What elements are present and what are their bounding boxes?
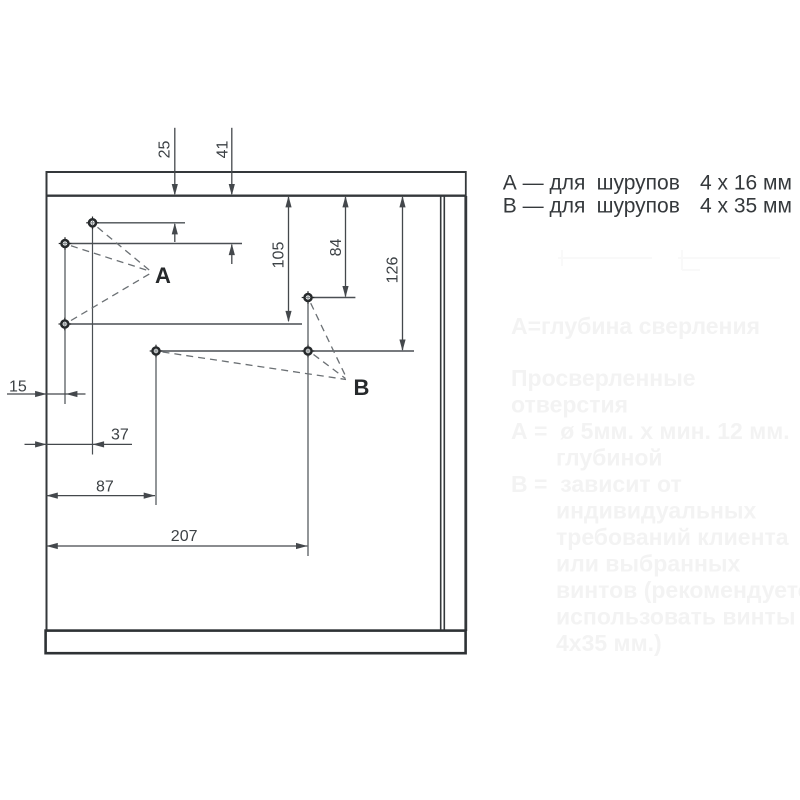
svg-text:84: 84 [328,239,345,257]
svg-text:Просверленные: Просверленные [511,365,696,391]
svg-text:винтов (рекомендуется: винтов (рекомендуется [556,577,800,603]
svg-text:А = ø 5мм. х мин. 12 мм.: А = ø 5мм. х мин. 12 мм. [511,418,790,444]
svg-text:шурупов: шурупов [597,195,680,218]
svg-text:37: 37 [111,427,129,444]
svg-text:207: 207 [171,528,198,545]
svg-text:126: 126 [384,257,401,284]
svg-text:шурупов: шурупов [597,172,680,195]
svg-text:4 х 16 мм: 4 х 16 мм [700,172,792,195]
svg-text:15: 15 [9,379,27,396]
svg-text:использовать винты: использовать винты [556,604,795,630]
svg-text:25: 25 [157,141,174,159]
svg-text:4х35 мм.): 4х35 мм.) [556,630,662,656]
svg-text:B: B [354,375,370,400]
svg-text:индивидуальных: индивидуальных [556,498,756,524]
svg-text:A: A [155,263,171,288]
svg-text:В = зависит от: В = зависит от [511,471,682,497]
svg-text:87: 87 [96,479,114,496]
svg-text:А=глубина сверления: А=глубина сверления [511,313,760,339]
svg-text:105: 105 [271,242,288,269]
svg-text:требований клиента: требований клиента [556,524,789,550]
svg-text:глубиной: глубиной [556,445,663,471]
svg-text:4 х 35 мм: 4 х 35 мм [700,195,792,218]
svg-text:отверстия: отверстия [511,392,628,418]
svg-text:41: 41 [214,141,231,159]
svg-text:или выбранных: или выбранных [556,551,741,577]
svg-text:А — для: А — для [503,172,586,195]
svg-text:В — для: В — для [503,195,586,218]
